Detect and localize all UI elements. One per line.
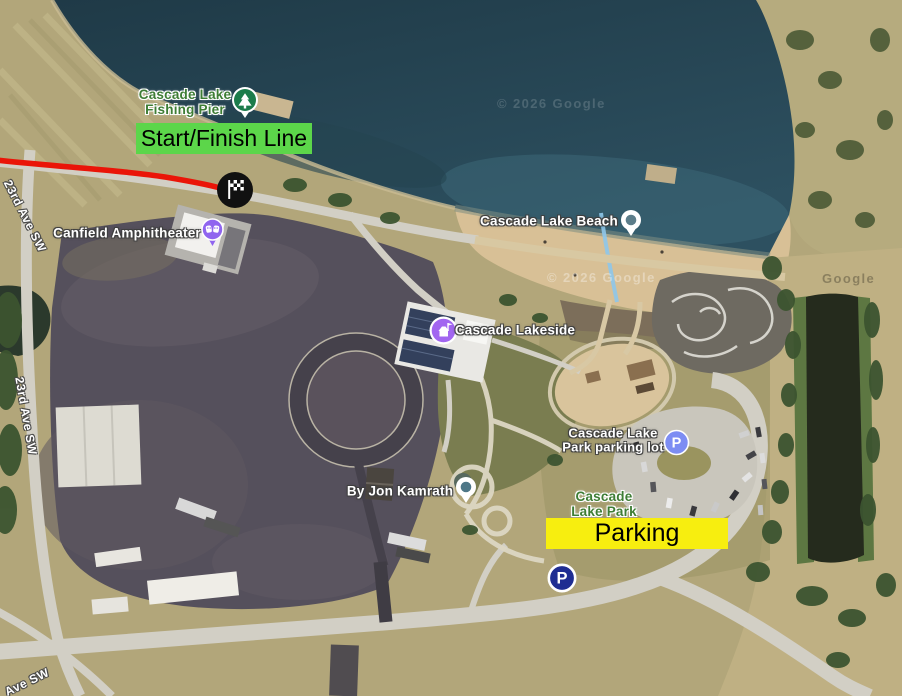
map-canvas[interactable]: 23rd Ave SW 23rd Ave SW Ave SW © 2026 Go… xyxy=(0,0,902,696)
poi-label-lakeside[interactable]: Cascade Lakeside xyxy=(455,324,575,339)
race-route-line xyxy=(0,0,902,696)
poi-label-line: Cascade Lake xyxy=(139,87,231,102)
parking-sign-icon: P xyxy=(546,562,578,594)
location-pin-icon[interactable] xyxy=(619,209,643,237)
poi-label-beach[interactable]: Cascade Lake Beach xyxy=(480,215,618,230)
park-tree-icon[interactable] xyxy=(230,87,260,121)
theater-masks-pin-icon[interactable] xyxy=(199,217,226,248)
poi-label-line: Cascade Lake xyxy=(568,426,657,441)
parking-annotation-label: Parking xyxy=(595,519,680,548)
google-watermark-beach: © 2026 Google xyxy=(547,270,656,285)
poi-label-cascade-lake-park[interactable]: Cascade Lake Park xyxy=(571,490,637,520)
poi-label-photo-attribution[interactable]: By Jon Kamrath xyxy=(347,485,453,500)
google-watermark-right: Google xyxy=(822,271,875,286)
poi-label-line: Park parking lot xyxy=(562,441,663,455)
start-finish-annotation: Start/Finish Line xyxy=(136,123,312,154)
parking-annotation: Parking xyxy=(546,518,728,549)
google-watermark-lake: © 2026 Google xyxy=(497,96,606,111)
poi-label-fishing-pier[interactable]: Cascade Lake Fishing Pier xyxy=(139,88,231,118)
location-pin-icon[interactable] xyxy=(454,476,478,504)
parking-circle-icon[interactable]: P xyxy=(663,429,690,456)
poi-label-park-parking-lot[interactable]: Cascade Lake Park parking lot xyxy=(562,427,663,456)
poi-label-line: Fishing Pier xyxy=(139,103,231,118)
start-finish-annotation-label: Start/Finish Line xyxy=(141,125,307,152)
svg-text:P: P xyxy=(672,436,682,452)
poi-label-line: Cascade xyxy=(576,489,633,504)
svg-text:P: P xyxy=(556,570,567,588)
start-finish-marker xyxy=(216,171,254,209)
poi-label-amphitheater[interactable]: Canfield Amphitheater xyxy=(53,227,201,242)
